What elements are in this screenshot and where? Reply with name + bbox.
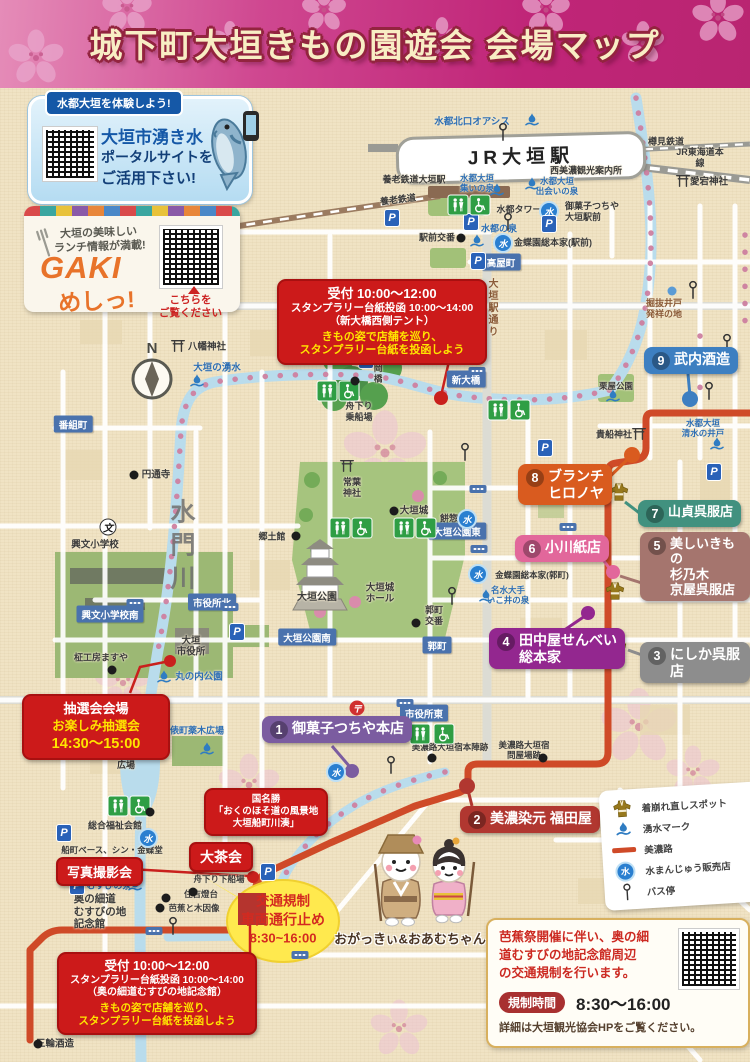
bus-stop-icon <box>501 212 515 232</box>
traffic-line: 交通規制 <box>241 893 325 911</box>
poi-dot <box>156 904 165 913</box>
notice-line: スタンプラリー台紙を投函しよう <box>63 1015 251 1028</box>
spring-icon <box>156 669 172 685</box>
reception-notice-top: 受付 10:00～12:00 スタンプラリー台紙投函 10:00～14:00 （… <box>277 279 487 365</box>
restriction-time-value: 8:30～16:00 <box>576 990 671 1015</box>
mascot-names-label: おがっきぃ&おあむちゃん <box>334 929 486 948</box>
spot-9-takeuchi-shuzo: 9武内酒造 <box>644 347 738 374</box>
label-castle-hall: 大垣城 ホール <box>366 583 395 606</box>
spot-7-yamasada: 7山貞呉服店 <box>638 500 741 527</box>
parking-icon: P <box>384 209 400 227</box>
parking-icon: P <box>56 824 72 842</box>
street-tag-kobun-south: 興文小学校南 <box>76 606 143 623</box>
traffic-info-card: 芭蕉祭開催に伴い、奥の細 道むすびの地記念館周辺 の交通規制を行います。 規制時… <box>486 918 750 1048</box>
post-office-icon: 〒 <box>350 701 365 716</box>
legend-label: 美濃路 <box>644 840 673 856</box>
poi-dot <box>351 377 360 386</box>
wheelchair-icon <box>434 724 455 745</box>
label-tourist-info: 西美濃観光案内所 <box>550 166 622 177</box>
label-yoro-ogaki-station: 養老鉄道大垣駅 <box>382 175 445 186</box>
map-legend: 着崩れ直しスポット 湧水マーク 美濃路 水 水まんじゅう販売店 バス停 <box>598 781 750 911</box>
label-kuruwamachi-koban: 郭町 交番 <box>425 605 443 627</box>
bus-stop-icon <box>445 586 459 606</box>
legend-label: バス停 <box>646 882 675 898</box>
poi-dot <box>457 234 466 243</box>
notice-line: （奥の細道むすびの地記念館） <box>63 987 251 1000</box>
toilet-icon <box>330 518 351 539</box>
label-kyodokan: 郷土館 <box>258 532 285 543</box>
crossing-signal-icon <box>146 927 163 935</box>
bus-stop-icon <box>686 280 700 300</box>
toilet-icon <box>488 400 509 421</box>
parking-icon: P <box>463 213 479 231</box>
notice-line: スタンプラリー台紙投函 10:00～14:00 <box>283 302 481 315</box>
label-suimon-river: 水門川 <box>166 499 196 598</box>
lottery-notice: 抽選会会場 お楽しみ抽選会 14:30～15:00 <box>22 694 170 760</box>
bus-stop-icon <box>458 442 472 462</box>
label-kinenkan: 奥の細道 むすびの地 記念館 <box>74 893 127 931</box>
crossing-signal-icon <box>292 951 309 959</box>
torii-icon <box>170 338 186 353</box>
parking-icon: P <box>260 863 276 881</box>
notice-line: 受付 10:00～12:00 <box>63 959 251 975</box>
traffic-info-qr-code <box>679 929 739 989</box>
promo-badge: 水都大垣を体験しよう! <box>45 90 183 116</box>
scenic-site-box: 国名勝 「おくのほそ道の風景地 大垣船町川湊」 <box>204 788 328 836</box>
poi-dot <box>146 808 155 817</box>
label-kincho-kuruwamachi: 金蝶園総本家(郭町) <box>495 570 569 580</box>
notice-line: きもの姿で店舗を巡り、 <box>283 331 481 345</box>
spring-icon <box>189 373 205 389</box>
spot-number: 8 <box>526 469 544 487</box>
mizu-manju-icon: 水 <box>468 564 488 584</box>
compass: N <box>130 340 174 406</box>
spring-icon <box>709 436 725 452</box>
bus-stop-icon <box>384 755 398 775</box>
awning-stripe <box>24 206 240 216</box>
bus-stop-icon <box>614 882 639 902</box>
legend-label: 着崩れ直しスポット <box>641 795 727 814</box>
label-basho-statue: 芭蕉と木因像 <box>168 903 219 913</box>
parking-icon: P <box>706 463 722 481</box>
notice-line: 受付 10:00～12:00 <box>283 286 481 302</box>
map-page: JR大垣駅 N 水都北口オアシス 樽見鉄道 JR東海道本線 西美濃観光案内所 養… <box>0 0 750 1062</box>
spring-icon <box>524 112 540 128</box>
poi-dot <box>428 754 437 763</box>
poi-dot <box>130 471 139 480</box>
crossing-signal-icon <box>469 367 486 375</box>
street-tag-takayacho: 高屋町 <box>482 254 521 271</box>
label-kifune-shrine: 貴船神社 <box>596 430 632 441</box>
mascot-characters <box>338 824 488 934</box>
parking-icon: P <box>541 215 557 233</box>
traffic-line: 車両通行止め <box>241 910 325 928</box>
spot-number: 7 <box>646 505 664 523</box>
school-icon: 文 <box>100 519 117 536</box>
label-boat-landing: 舟下り下船場 <box>193 874 244 884</box>
toilet-icon <box>410 724 431 745</box>
photo-session-box: 写真撮影会 <box>56 857 143 886</box>
spot-number: 3 <box>648 647 666 665</box>
label-masaya: 柾工房ますや <box>74 653 128 664</box>
poi-dot <box>34 1040 43 1049</box>
label-ogaki-castle: 大垣城 <box>400 505 429 516</box>
label-marunouchi-park: 丸の内公園 <box>175 671 223 682</box>
notice-line: 14:30～15:00 <box>28 735 164 753</box>
crossing-signal-icon <box>471 545 488 553</box>
wheelchair-icon <box>416 518 437 539</box>
spot-5-suginoki-kyoya: 5美しいきもの 杉乃木 京屋呉服店 <box>640 532 750 601</box>
label-kobun-school: 興文小学校 <box>71 539 119 550</box>
poi-dot <box>412 619 421 628</box>
gaki-meshi-promo: 大垣の美味しい ランチ情報が満載! GAKI めしっ! こちらを ご覧ください <box>24 206 240 312</box>
mizu-manju-icon: 水 <box>326 762 346 782</box>
label-tawaramachi-plaza: 俵町薬木広場 <box>170 726 224 737</box>
legend-label: 水まんじゅう販売店 <box>645 858 731 877</box>
label-city-hall: 大垣 市役所 <box>177 636 206 659</box>
spot-number: 1 <box>270 721 288 739</box>
spot-number: 6 <box>523 540 541 558</box>
compass-n-label: N <box>130 340 174 357</box>
spot-1-tsuchiya-honten: 1御菓子つちや本店 <box>262 716 412 743</box>
street-tag-park-east: 大垣公園東 <box>428 523 486 540</box>
notice-line: 国名勝 <box>210 794 322 806</box>
portal-qr-code <box>43 127 97 181</box>
notice-line: きもの姿で店舗を巡り、 <box>63 1002 251 1015</box>
label-yawata-shrine: 八幡神社 <box>188 341 226 352</box>
promo-line2: ポータルサイトを <box>101 147 213 167</box>
gaki-note: こちらを ご覧ください <box>159 294 222 319</box>
tea-ceremony-box: 大茶会 <box>189 842 253 872</box>
mizu-manju-icon: 水 <box>493 233 513 253</box>
notice-line: （新大橋西側テント） <box>283 315 481 328</box>
toilet-icon <box>317 381 338 402</box>
wheelchair-icon <box>510 400 531 421</box>
parking-icon: P <box>470 252 486 270</box>
crossing-signal-icon <box>397 699 414 707</box>
label-tarumi-railway: 樽見鉄道 <box>648 137 684 148</box>
torii-icon <box>339 458 355 473</box>
street-tag-kuruwamachi: 郭町 <box>422 637 451 654</box>
bus-stop-icon <box>166 916 180 936</box>
traffic-info-message: 芭蕉祭開催に伴い、奥の細 道むすびの地記念館周辺 の交通規制を行います。 <box>499 929 667 982</box>
kimono-icon <box>609 481 629 503</box>
up-arrow-icon <box>188 286 200 294</box>
page-title: 城下町大垣きもの園遊会 会場マップ <box>0 0 750 88</box>
label-ekimae-koban: 駅前交番 <box>419 233 455 244</box>
spring-icon <box>489 182 505 198</box>
bus-stop-icon <box>702 381 716 401</box>
poi-dot <box>539 754 548 763</box>
notice-line: スタンプラリー台紙を投函しよう <box>283 344 481 358</box>
info-card-note: 詳細は大垣観光協会HPをご覧ください。 <box>499 1019 701 1035</box>
spot-4-tanakaya: 4田中屋せんべい 総本家 <box>489 628 625 669</box>
spring-icon <box>524 176 540 192</box>
crossing-signal-icon <box>470 485 487 493</box>
label-ogaki-spring: 大垣の湧水 <box>193 362 241 373</box>
street-tag-park-south: 大垣公園南 <box>278 629 336 646</box>
spot-number: 4 <box>497 633 515 651</box>
notice-line: 抽選会会場 <box>28 701 164 717</box>
spring-water-portal-promo: 水都大垣を体験しよう! 大垣市湧き水 ポータルサイトを ご活用下さい! <box>28 96 252 204</box>
label-entsuji: 円通寺 <box>142 469 171 480</box>
spring-icon <box>605 388 621 404</box>
label-horinuki-well: 掘抜井戸 発祥の地 <box>646 298 682 320</box>
bus-stop-icon <box>496 122 510 142</box>
toilet-icon <box>394 518 415 539</box>
toilet-icon <box>108 796 129 817</box>
label-kincho-ekimae: 金蝶園総本家(駅前) <box>514 238 592 249</box>
kimono-icon <box>609 798 634 819</box>
gaki-qr-code <box>160 226 222 288</box>
spot-3-nishika: 3にしか呉服店 <box>640 642 750 683</box>
fish-mascot-icon <box>203 101 267 191</box>
poi-dot <box>189 888 198 897</box>
crossing-signal-icon <box>127 599 144 607</box>
label-fukushi-kaikan: 総合福祉会館 <box>88 821 142 832</box>
label-atago-shrine: 愛宕神社 <box>690 176 728 187</box>
compass-icon <box>130 357 174 401</box>
legend-label: 湧水マーク <box>642 818 690 835</box>
mizu-manju-icon: 水 <box>613 860 638 881</box>
poi-dot <box>108 666 117 675</box>
spot-8-branch-hironoya: 8ブランチ ヒロノヤ <box>518 464 612 505</box>
traffic-restriction-balloon-text: 交通規制 車両通行止め 8:30~16:00 <box>241 893 325 948</box>
route-line-icon <box>612 847 636 853</box>
street-tag-bangumicho: 番組町 <box>54 416 93 433</box>
label-boat-boarding: 舟下り 乗船場 <box>345 401 372 423</box>
torii-icon <box>631 426 647 441</box>
notice-line: スタンプラリー台紙投函 10:00～14:00 <box>63 975 251 988</box>
notice-line: 「おくのほそ道の風景地 <box>210 806 322 818</box>
gaki-logo2: めしっ! <box>57 280 135 318</box>
crossing-signal-icon <box>560 523 577 531</box>
spring-icon <box>478 588 494 604</box>
kimono-icon <box>605 580 625 602</box>
restriction-time-badge: 規制時間 <box>499 992 565 1013</box>
spring-icon <box>199 741 215 757</box>
label-tokiwa-shrine: 常葉 神社 <box>343 477 361 499</box>
toilet-icon <box>448 195 469 216</box>
title-banner: 城下町大垣きもの園遊会 会場マップ <box>0 0 750 88</box>
promo-line1: 大垣市湧き水 <box>101 123 203 148</box>
poi-dot <box>162 894 171 903</box>
poi-dot <box>390 507 399 516</box>
spring-icon <box>469 233 485 249</box>
wheelchair-icon <box>352 518 373 539</box>
poi-dot <box>292 532 301 541</box>
spot-number: 9 <box>652 352 670 370</box>
label-ogaki-park: 大垣公園 <box>297 592 337 604</box>
mizu-manju-icon: 水 <box>138 828 158 848</box>
notice-line: お楽しみ抽選会 <box>28 719 164 735</box>
crossing-signal-icon <box>222 603 239 611</box>
reception-notice-bottom: 受付 10:00～12:00 スタンプラリー台紙投函 10:00～14:00 （… <box>57 952 257 1035</box>
spring-icon <box>610 820 635 838</box>
parking-icon: P <box>229 623 245 641</box>
mizu-manju-icon: 水 <box>457 509 477 529</box>
spot-number: 5 <box>648 537 666 555</box>
torii-icon <box>675 173 691 188</box>
label-deai-spring: 水都大垣 出会いの泉 <box>536 176 579 196</box>
label-tsuchiya-ekimae: 御菓子つちや 大垣駅前 <box>565 201 619 223</box>
wheelchair-icon <box>470 195 491 216</box>
parking-icon: P <box>537 439 553 457</box>
label-jr-tokaido-line: JR東海道本線 <box>675 147 725 169</box>
promo-line3: ご活用下さい! <box>101 167 196 188</box>
notice-line: 大垣船町川湊」 <box>210 818 322 830</box>
spot-6-ogawa: 6小川紙店 <box>515 535 609 562</box>
traffic-line: 8:30~16:00 <box>241 930 325 947</box>
